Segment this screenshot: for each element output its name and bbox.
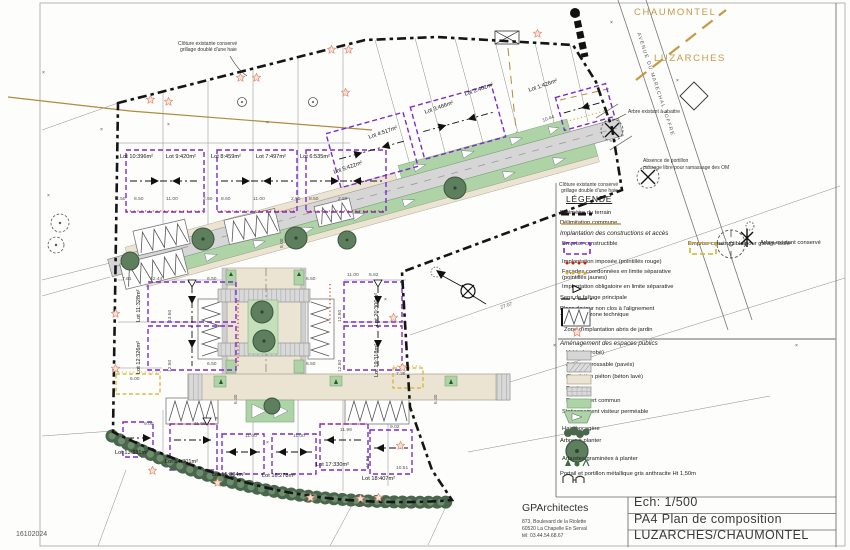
commune-swatch-icon bbox=[560, 220, 622, 228]
legend-row-paves: Pavés bbox=[566, 386, 582, 392]
lot-label-19: Lot 19:318m² bbox=[374, 344, 380, 377]
x-mark: × bbox=[47, 193, 50, 199]
site-plan: CHAUMONTEL LUZARCHES AVENUE DU MARECHAL … bbox=[0, 0, 850, 550]
dim-label: 11.00 bbox=[166, 197, 178, 203]
yellow-dots-icon bbox=[562, 269, 592, 277]
legend-row-imposee: Implantation imposée (pointillés rouge) bbox=[562, 259, 662, 265]
lot-label-8: Lot 8:459m² bbox=[211, 154, 241, 160]
x-mark: × bbox=[384, 297, 387, 303]
legend-section-amenagement: Aménagement des espaces publics bbox=[560, 341, 658, 347]
legend-row-voirie: Voirie (enrobé) bbox=[566, 350, 604, 356]
pieton-swatch-icon bbox=[566, 374, 592, 385]
x-mark: × bbox=[266, 440, 269, 446]
garage-swatch-icon bbox=[688, 241, 718, 256]
lot-label-14: Lot 14:301m² bbox=[165, 459, 198, 465]
architect-address1: 873, Boulevard de la Riolette bbox=[522, 519, 586, 525]
dim-label: 2.50 bbox=[338, 197, 348, 203]
day-bay-swatch-icon bbox=[560, 306, 592, 328]
dim-label: 12.50 bbox=[338, 360, 344, 372]
lot-label-18: Lot 18:407m² bbox=[362, 476, 395, 482]
dim-label: 6.50 bbox=[207, 277, 217, 283]
acces-swatch-icon bbox=[566, 362, 592, 373]
site-plan-svg bbox=[0, 0, 850, 550]
dim-label: 11.00 bbox=[293, 434, 305, 440]
dim-label: 2.50 bbox=[116, 197, 126, 203]
legend-row-faitage: Sens de faîtage principale bbox=[560, 295, 627, 301]
x-mark: × bbox=[610, 20, 613, 26]
legend-row-portail: Portail et portillon métallique gris ant… bbox=[560, 471, 696, 477]
dim-label: 11.00 bbox=[245, 434, 257, 440]
legend-row-arbustes: Arbustes/graminées à planter bbox=[562, 456, 638, 462]
dim-label: 11.00 bbox=[347, 273, 359, 279]
dim-label: 11.00 bbox=[253, 197, 265, 203]
legend-row-place-de-jour: Place de jour non clos à l'alignement+ m… bbox=[560, 306, 654, 318]
lot-label-13: Lot 13:331m² bbox=[115, 450, 148, 456]
legend-label-arbre-conserve: Arbre existant conservé bbox=[760, 240, 821, 246]
dim-label: 8.50 bbox=[221, 197, 231, 203]
paves-swatch-icon bbox=[566, 386, 592, 397]
dim-label: 8.50 bbox=[309, 197, 319, 203]
legend-row-haie: Haie bocagère bbox=[562, 426, 600, 432]
stationnement-swatch-icon bbox=[562, 409, 594, 425]
lot-label-15: Lot 15:304m² bbox=[212, 472, 245, 478]
dim-label: 7.36 bbox=[396, 372, 406, 378]
x-mark: × bbox=[215, 416, 218, 422]
x-mark: × bbox=[167, 122, 170, 128]
faitage-swatch-icon bbox=[560, 295, 594, 303]
legend-row-pieton: Circulation piéton (béton lavé) bbox=[566, 374, 643, 380]
dim-label: 6.30 bbox=[234, 394, 240, 404]
lot-label-20: Lot 20:300m² bbox=[374, 293, 380, 326]
legend-row-espace-vert: Espace vert commun bbox=[566, 398, 620, 404]
legend-row-acces: Accès carrossable (pavés) bbox=[566, 362, 634, 368]
legend-row-emprise: Emprise constructible bbox=[562, 241, 617, 247]
dim-label: 11.99 bbox=[340, 428, 352, 434]
dim-label: 9.02 bbox=[390, 425, 400, 431]
x-mark: × bbox=[676, 78, 679, 84]
emprise-swatch-icon bbox=[562, 241, 592, 256]
legend-row-commune: Délimitation commune bbox=[560, 220, 617, 226]
legend-row-obligatoire: Implantation obligatoire en limite sépar… bbox=[562, 284, 674, 290]
parcel-lines bbox=[42, 38, 845, 546]
dim-label: 6.30 bbox=[434, 394, 440, 404]
lot-label-9: Lot 9:420m² bbox=[166, 154, 196, 160]
lot-label-7: Lot 7:497m² bbox=[256, 154, 286, 160]
dim-label: 6.00 bbox=[130, 377, 140, 383]
dim-label: 7.61 bbox=[122, 277, 132, 283]
title-project: LUZARCHES/CHAUMONTEL bbox=[634, 532, 809, 538]
open-triangle-icon bbox=[562, 284, 592, 294]
dim-label: 12.50 bbox=[338, 310, 344, 322]
title-scale: Ech: 1/500 bbox=[634, 499, 698, 505]
legend-row-stationnement: Stationnement visiteur perméable bbox=[562, 409, 648, 415]
x-mark: × bbox=[795, 343, 798, 349]
dim-label: 12.93 bbox=[366, 456, 372, 468]
lot-label-16: Lot 16:278m² bbox=[262, 473, 295, 479]
legend-tree-icon bbox=[717, 222, 754, 258]
dim-label: 13.50 bbox=[168, 310, 174, 322]
dim-label: 2.50 bbox=[203, 197, 213, 203]
star-swatch-icon bbox=[564, 327, 590, 338]
tree-fell-note: Arbre existant à abattre bbox=[628, 110, 680, 116]
voirie-swatch-icon bbox=[566, 350, 592, 361]
x-mark: × bbox=[100, 127, 103, 133]
dim-label: 5.00 bbox=[280, 238, 286, 248]
perimeter-swatch-icon bbox=[560, 210, 594, 218]
dim-label: 12.50 bbox=[168, 360, 174, 372]
dim-label: 12.44 bbox=[150, 277, 162, 283]
legend-row-arbres: Arbres à planter bbox=[560, 438, 601, 444]
portail-swatch-icon bbox=[560, 471, 590, 485]
x-mark: × bbox=[266, 120, 269, 126]
commune-label-south: LUZARCHES bbox=[654, 56, 726, 62]
dim-label: 6.50 bbox=[207, 362, 217, 368]
dim-label: 5.82 bbox=[369, 273, 379, 279]
dim-label: 2.50 bbox=[291, 197, 301, 203]
dim-label: 10.51 bbox=[396, 466, 408, 472]
commune-label-north: CHAUMONTEL bbox=[634, 10, 717, 16]
arbustes-swatch-icon bbox=[562, 456, 592, 468]
espace-vert-swatch-icon bbox=[566, 398, 592, 409]
architect-phone: tél: 03.44.54.68.67 bbox=[522, 533, 563, 539]
lot-label-10: Lot 10:396m² bbox=[120, 154, 153, 160]
lot-label-6: Lot 6:535m² bbox=[300, 154, 330, 160]
lot-label-12: Lot 12:326m² bbox=[136, 341, 142, 374]
gate-note-line2: passage libre pour ramassage des OM bbox=[643, 166, 729, 172]
date-stamp: 16102024 bbox=[16, 532, 47, 538]
legend-row-perimeter: Périmètre du terrain bbox=[560, 210, 611, 216]
legend-section-implantation: Implantation des constructions et accès bbox=[560, 231, 668, 237]
legend-title: LÉGENDE bbox=[566, 196, 612, 202]
lot-label-17: Lot 17:330m² bbox=[316, 462, 349, 468]
x-mark: × bbox=[553, 343, 556, 349]
title-sheet: PA4 Plan de composition bbox=[634, 516, 782, 522]
legend-row-facades: Façades coordonnées en limite séparative… bbox=[562, 269, 671, 281]
dim-label: 8.50 bbox=[134, 197, 144, 203]
dim-label: 6.50 bbox=[306, 277, 316, 283]
gate-note-line1: Absence de portillon bbox=[643, 159, 688, 165]
red-dots-icon bbox=[562, 259, 592, 267]
architect-address2: 60520 La Chapelle En Serval bbox=[522, 526, 587, 532]
architect-name: GPArchitectes bbox=[522, 505, 588, 511]
dim-label: 9.00 bbox=[144, 422, 154, 428]
fence-note-top-line2: grillage doublé d'une haie bbox=[180, 48, 237, 54]
x-mark: × bbox=[42, 70, 45, 76]
legend-row-abris: Zone d'implantation abris de jardin bbox=[564, 327, 652, 333]
dim-label: 6.50 bbox=[306, 362, 316, 368]
dim-label: 11.50 bbox=[194, 422, 206, 428]
lot-label-11: Lot 11:328m² bbox=[136, 289, 142, 322]
